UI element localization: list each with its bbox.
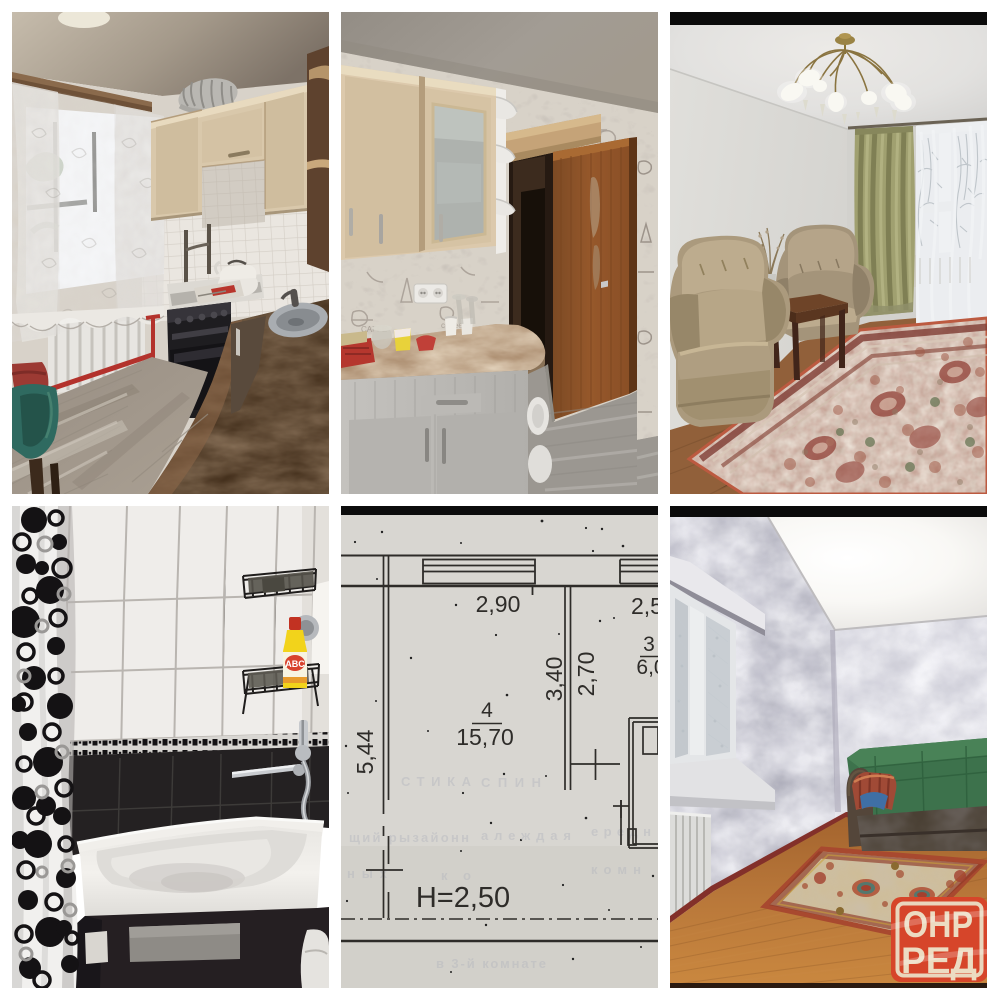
svg-text:2,5: 2,5 — [631, 593, 658, 619]
svg-text:2,70: 2,70 — [573, 652, 599, 697]
svg-text:15,70: 15,70 — [456, 724, 514, 750]
svg-text:в 3-й комнате: в 3-й комнате — [436, 956, 546, 971]
svg-text:3,40: 3,40 — [541, 657, 567, 702]
svg-text:4: 4 — [481, 699, 493, 722]
svg-text:3: 3 — [643, 633, 655, 656]
svg-text:щий рызайонн: щий рызайонн — [349, 830, 469, 845]
svg-text:5,44: 5,44 — [352, 729, 378, 774]
svg-text:алеждая: алеждая — [481, 828, 571, 843]
svg-text:2,90: 2,90 — [476, 591, 521, 617]
svg-text:6,0: 6,0 — [636, 656, 658, 679]
svg-text:ABC: ABC — [285, 659, 305, 669]
svg-text:H=2,50: H=2,50 — [416, 882, 510, 914]
svg-text:ных: ных — [347, 866, 388, 881]
